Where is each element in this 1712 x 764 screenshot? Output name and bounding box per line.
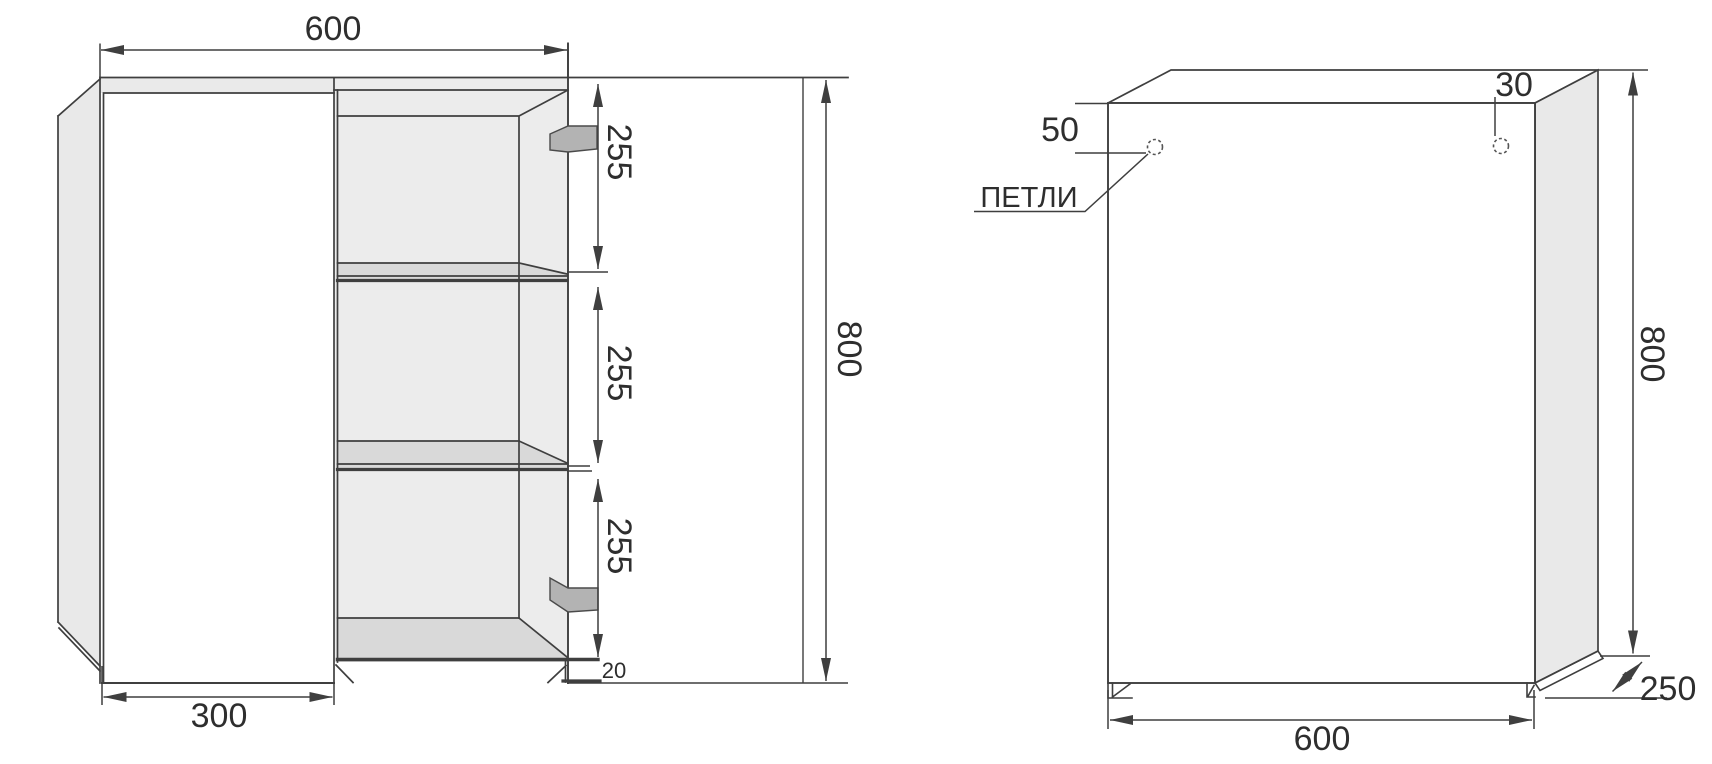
dim-label-width-600-right: 600 (1294, 720, 1351, 758)
dim-label-door-300: 300 (191, 697, 248, 735)
drawing-canvas: 600 300 800 255 255 255 20 (0, 0, 1712, 764)
door-front-face (1108, 103, 1535, 683)
dim-label-shelf-255-3: 255 (600, 518, 638, 575)
cabinet-technical-drawing: 600 300 800 255 255 255 20 (0, 0, 1712, 764)
dim-255-tick-2 (567, 466, 592, 471)
dim-label-shelf-255-1: 255 (600, 124, 638, 181)
shelf-compartment-back-wall (334, 78, 568, 662)
top-panel-front-band (100, 78, 334, 93)
dim-label-height-800: 800 (830, 321, 868, 378)
dim-label-depth-250: 250 (1640, 670, 1697, 708)
dim-label-hinge-50: 50 (1041, 111, 1079, 149)
dim-250-line (1613, 662, 1643, 692)
dim-label-hinge-30: 30 (1495, 66, 1533, 104)
right-view-cabinet-closed: 50 30 ПЕТЛИ 800 250 600 (974, 66, 1696, 758)
hinges-callout-label: ПЕТЛИ (980, 182, 1077, 214)
foot-notches (336, 661, 566, 683)
side-panel (1535, 70, 1598, 683)
dim-label-width-600: 600 (305, 10, 362, 48)
left-view-cabinet-open: 600 300 800 255 255 255 20 (58, 10, 868, 735)
open-door-panel (58, 79, 100, 668)
hinge-hole-left (1148, 140, 1163, 155)
dim-label-inset-20: 20 (602, 658, 626, 683)
hinge-hole-right (1494, 139, 1509, 154)
dim-label-height-800-right: 800 (1633, 326, 1671, 383)
dim-label-shelf-255-2: 255 (600, 345, 638, 402)
doorway-inner-edge (104, 93, 335, 683)
foot-left (1108, 683, 1132, 698)
